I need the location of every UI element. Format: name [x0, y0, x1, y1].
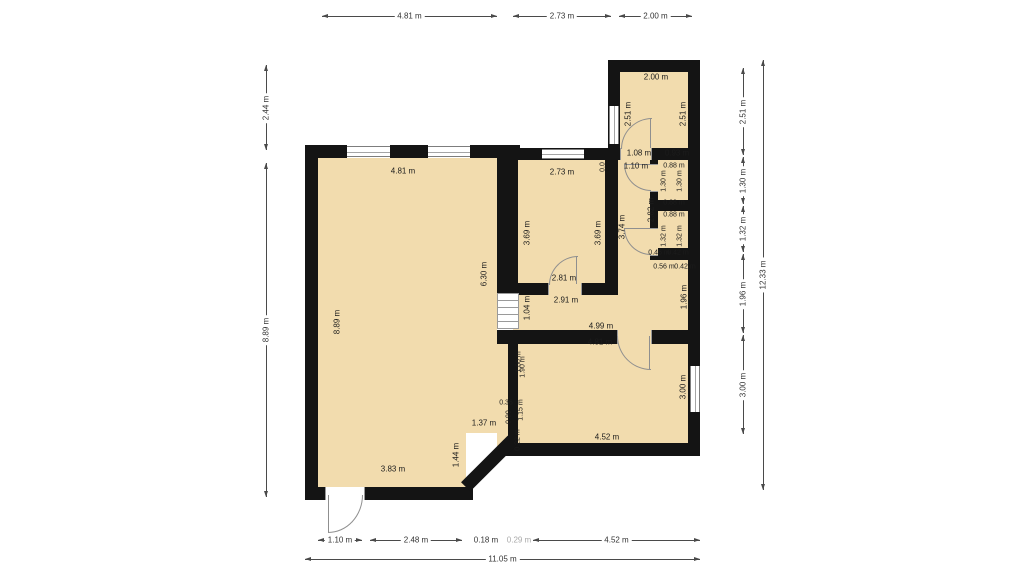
room-label: 3.69 m	[523, 221, 532, 245]
room-label: 1.30 m	[677, 170, 684, 191]
room-label: 0.88 m	[663, 200, 684, 207]
door-leaf-closet-bottom	[624, 228, 650, 229]
dimension-label: 2.48 m	[401, 536, 431, 545]
wall-bedroom-bottom	[505, 443, 700, 456]
room-label: 1.32 m	[661, 225, 668, 246]
arrowhead-icon	[694, 557, 700, 561]
room-label: 0.88 m	[663, 212, 684, 219]
dimension-label: 0.29 m	[507, 536, 531, 545]
dimension-label: 1.10 m	[325, 536, 355, 545]
wall-hall-bottom-b	[650, 330, 688, 344]
dimension-label: 0.18 m	[474, 536, 498, 545]
dimension-label: 1.30 m	[739, 165, 748, 195]
room-label: 0.42 m	[674, 264, 695, 271]
dimension-right-2: 1.30 m	[743, 157, 744, 204]
door-gap-closet-top	[650, 164, 658, 192]
window-topright-room	[609, 106, 619, 144]
dimension-left-1: 2.44 m	[266, 65, 267, 150]
arrowhead-icon	[741, 157, 745, 163]
wall-top-a	[305, 145, 347, 158]
room-label: 0.93 m	[665, 149, 689, 158]
arrowhead-icon	[694, 538, 700, 542]
dimension-top-3: 2.00 m	[619, 16, 692, 17]
room-label: 1.44 m	[452, 443, 461, 467]
wall-living-mid	[497, 145, 518, 295]
dimension-bottom-2: 2.48 m	[370, 540, 462, 541]
room-label: 1.37 m	[472, 419, 496, 428]
room-label: 3.00 m	[679, 375, 688, 399]
arrowhead-icon	[741, 254, 745, 260]
dimension-top-2: 2.73 m	[513, 16, 611, 17]
room-label: 1.32 m	[677, 225, 684, 246]
arrowhead-icon	[264, 491, 268, 497]
dimension-label: 12.33 m	[759, 258, 768, 293]
arrowhead-icon	[318, 538, 324, 542]
arrowhead-icon	[761, 60, 765, 66]
dimension-label: 2.00 m	[640, 12, 670, 21]
arrowhead-icon	[491, 14, 497, 18]
wall-topright-top	[608, 60, 700, 72]
wall-diagonal	[461, 436, 517, 492]
floorplan-canvas: 4.81 m 8.89 m 6.30 m 3.83 m 1.44 m 1.37 …	[0, 0, 1024, 576]
arrowhead-icon	[356, 538, 362, 542]
room-label: 1.30 m	[661, 170, 668, 191]
arrowhead-icon	[264, 144, 268, 150]
dimension-label: 2.51 m	[739, 96, 748, 126]
arrowhead-icon	[322, 14, 328, 18]
dimension-label: 3.00 m	[739, 369, 748, 399]
room-bottom-right-fill	[518, 344, 688, 443]
room-label: 1.90 m	[520, 356, 527, 377]
room-label: 2.73 m	[550, 168, 574, 177]
door-leaf-topright-room	[650, 118, 651, 148]
arrowhead-icon	[741, 198, 745, 204]
room-label: 4.81 m	[588, 338, 612, 347]
dimension-right-1: 2.51 m	[743, 68, 744, 155]
dimension-bottom-1: 1.10 m	[318, 540, 362, 541]
dimension-right-4: 1.96 m	[743, 254, 744, 333]
dimension-right-5: 3.00 m	[743, 335, 744, 434]
dimension-label: 4.81 m	[394, 12, 424, 21]
arrowhead-icon	[305, 557, 311, 561]
dimension-right-total: 12.33 m	[763, 60, 764, 490]
arrowhead-icon	[741, 246, 745, 252]
room-label: 1.96 m	[680, 285, 689, 309]
dimension-bottom-total: 11.05 m	[305, 559, 700, 560]
room-label: 2.82 m	[647, 198, 656, 222]
wall-left	[305, 145, 318, 500]
arrowhead-icon	[513, 14, 519, 18]
arrowhead-icon	[605, 14, 611, 18]
arrowhead-icon	[370, 538, 376, 542]
room-label: 6.30 m	[480, 262, 489, 286]
room-label: 4.99 m	[589, 322, 613, 331]
room-label: 3.74 m	[618, 215, 627, 239]
dimension-label: 8.89 m	[262, 315, 271, 345]
arrowhead-icon	[741, 428, 745, 434]
dimension-top-1: 4.81 m	[322, 16, 497, 17]
arrowhead-icon	[741, 68, 745, 74]
room-label: 1.04 m	[523, 296, 532, 320]
room-living-fill-lower	[318, 433, 466, 487]
wall-bedroom-left	[508, 330, 518, 443]
door-leaf-entry	[328, 495, 329, 532]
dimension-right-3: 1.32 m	[743, 206, 744, 252]
dimension-label: 11.05 m	[485, 555, 519, 564]
dimension-label: 4.52 m	[601, 536, 631, 545]
door-leaf-hall-bedroom	[649, 336, 650, 369]
room-label: 3.69 m	[594, 221, 603, 245]
room-label: 0.0	[600, 162, 607, 172]
room-label: 0.22 m	[515, 429, 522, 450]
room-label: 2.51 m	[624, 102, 633, 126]
arrowhead-icon	[686, 14, 692, 18]
wall-top-b	[390, 145, 428, 158]
arrowhead-icon	[264, 163, 268, 169]
window-mid-room	[542, 149, 584, 159]
window-living-1	[347, 146, 390, 157]
room-label: 2.51 m	[679, 102, 688, 126]
room-label: 8.89 m	[333, 310, 342, 334]
room-label: 2.00 m	[644, 73, 668, 82]
dimension-bottom-5: 4.52 m	[533, 540, 700, 541]
wall-mid-right	[605, 148, 618, 295]
dimension-label: 1.32 m	[739, 214, 748, 244]
room-label: 0.56 m	[653, 264, 674, 271]
room-label: 0.88 m	[663, 163, 684, 170]
room-living-fill	[318, 158, 497, 433]
arrowhead-icon	[741, 327, 745, 333]
room-label: 1.15 m	[518, 399, 525, 420]
room-label: 0.36	[499, 400, 513, 407]
dimension-label: 1.96 m	[739, 278, 748, 308]
window-living-2	[428, 146, 470, 157]
arrowhead-icon	[533, 538, 539, 542]
room-label: 0.90	[506, 410, 513, 424]
stairs	[497, 293, 519, 329]
room-label: 1.10 m	[624, 162, 648, 171]
arrowhead-icon	[456, 538, 462, 542]
room-label: 2.81 m	[552, 274, 576, 283]
dimension-label: 2.73 m	[547, 12, 577, 21]
arrowhead-icon	[264, 65, 268, 71]
room-label: 4.52 m	[595, 433, 619, 442]
room-label: 0.42 m	[667, 250, 688, 257]
room-label: 3.83 m	[381, 465, 405, 474]
arrowhead-icon	[741, 335, 745, 341]
dimension-label: 2.44 m	[262, 92, 271, 122]
arrowhead-icon	[761, 484, 765, 490]
room-label: 2.91 m	[554, 296, 578, 305]
room-label: 4.81 m	[391, 167, 415, 176]
dimension-left-2: 8.89 m	[266, 163, 267, 497]
window-bottomright-room	[690, 366, 700, 412]
door-arc-entry	[328, 495, 363, 533]
arrowhead-icon	[741, 149, 745, 155]
arrowhead-icon	[741, 206, 745, 212]
arrowhead-icon	[619, 14, 625, 18]
room-label: 1.08 m	[627, 149, 651, 158]
